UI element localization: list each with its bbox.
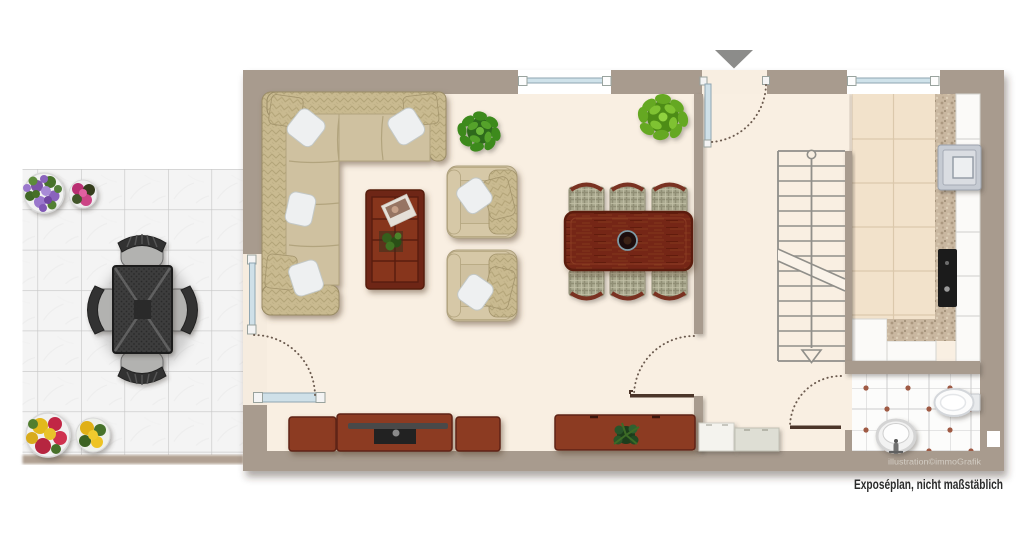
svg-text:Exposéplan, nicht maßstäblich: Exposéplan, nicht maßstäblich <box>854 477 1003 492</box>
svg-text:illustration©immoGrafik: illustration©immoGrafik <box>888 457 982 467</box>
